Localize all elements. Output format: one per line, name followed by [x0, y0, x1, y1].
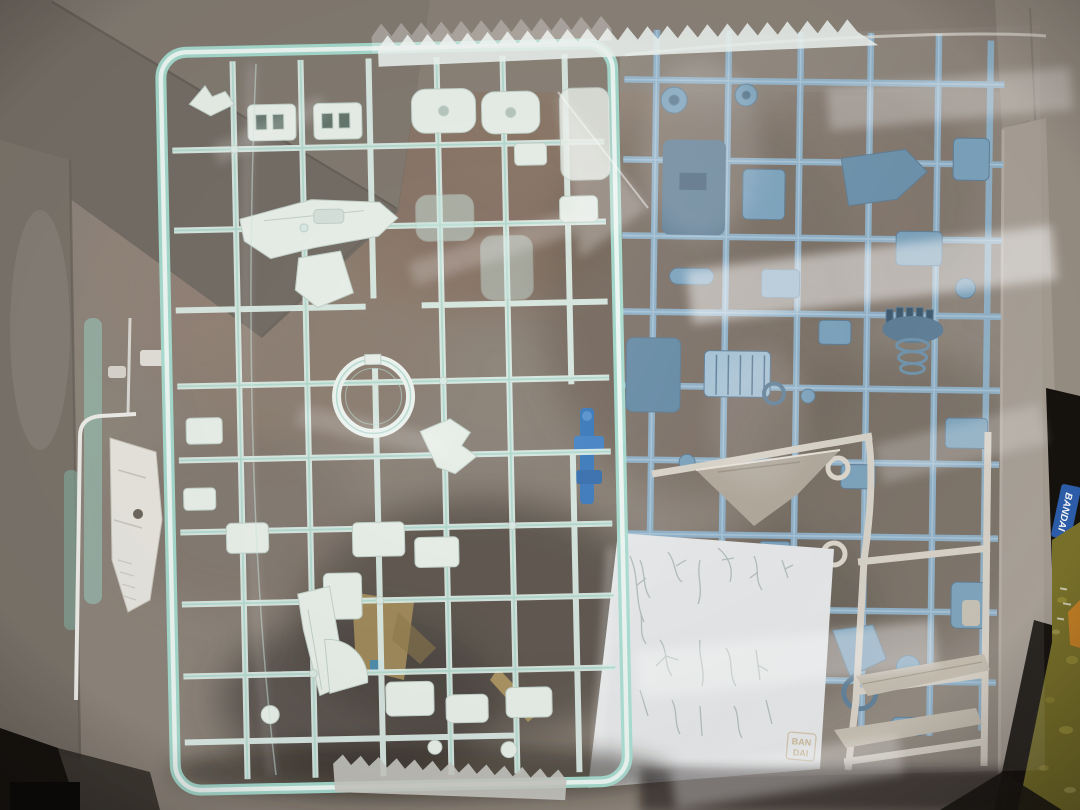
photo-model-kit-unboxing: BANDAI: [0, 0, 1080, 810]
vignette: [0, 0, 1080, 810]
photo-canvas: BANDAI: [0, 0, 1080, 810]
